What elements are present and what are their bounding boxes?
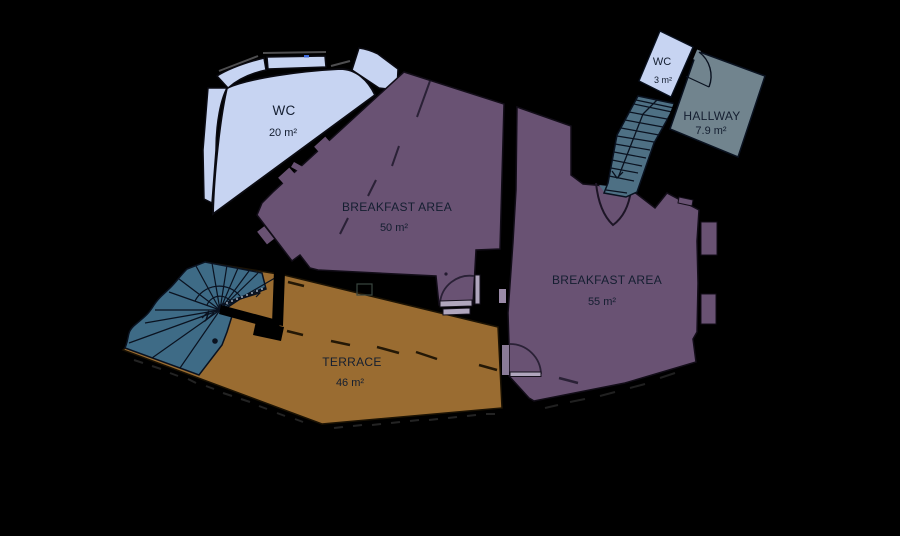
svg-text:HALLWAY: HALLWAY [683, 109, 740, 123]
svg-text:20 m²: 20 m² [269, 127, 297, 139]
svg-text:50 m²: 50 m² [380, 222, 408, 234]
svg-text:TERRACE: TERRACE [322, 355, 381, 369]
svg-text:WC: WC [653, 56, 671, 68]
svg-text:BREAKFAST AREA: BREAKFAST AREA [342, 200, 452, 214]
svg-text:55 m²: 55 m² [588, 296, 616, 308]
svg-text:3 m²: 3 m² [654, 75, 672, 85]
svg-text:WC: WC [272, 103, 295, 118]
svg-text:46 m²: 46 m² [336, 377, 364, 389]
svg-text:BREAKFAST AREA: BREAKFAST AREA [552, 273, 662, 287]
svg-text:7.9 m²: 7.9 m² [695, 125, 727, 137]
